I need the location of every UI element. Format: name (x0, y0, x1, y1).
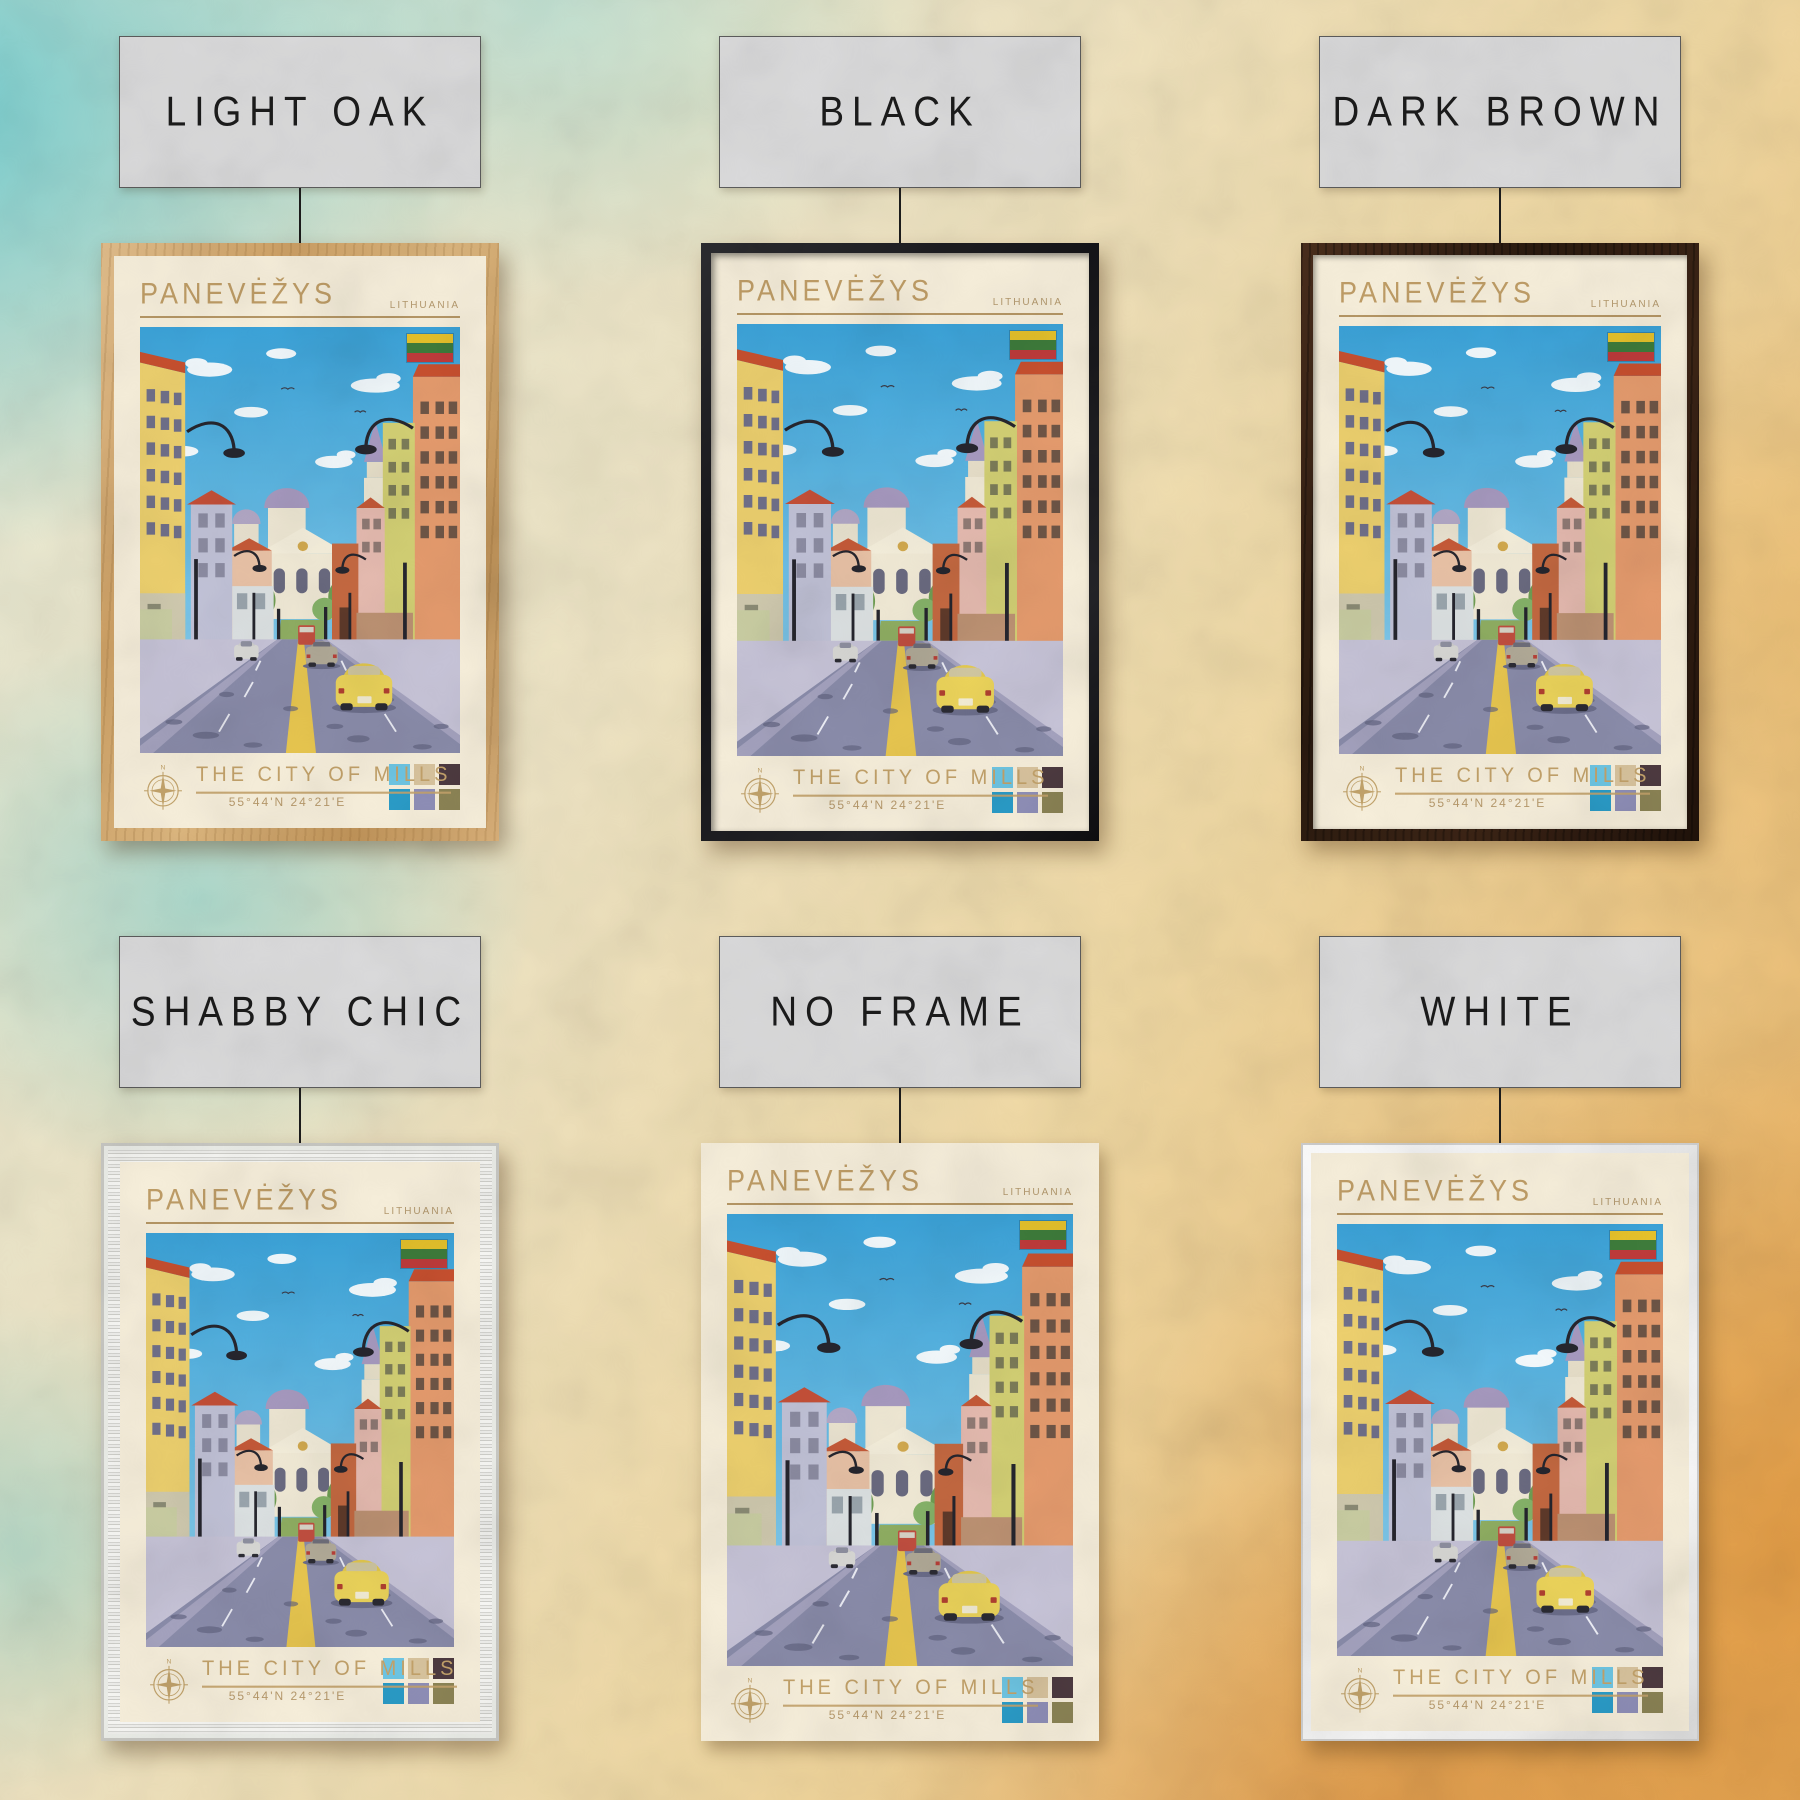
flag-stripe (401, 1240, 447, 1249)
coordinates: 55°44'N 24°21'E (229, 795, 347, 809)
footer-text: THE CITY OF MILLS 55°44'N 24°21'E (196, 764, 379, 811)
coordinates: 55°44'N 24°21'E (829, 798, 947, 812)
footer-text: THE CITY OF MILLS 55°44'N 24°21'E (202, 1658, 373, 1705)
poster-frame: PANEVĖŽYS LITHUANIA N (101, 1143, 499, 1741)
poster-footer: N THE CITY OF MILLS 55°44'N 24°21'E (1337, 1656, 1663, 1715)
poster-grid: LIGHT OAK PANEVĖŽYS LITHUANIA N (0, 0, 1800, 1800)
footer-text: THE CITY OF MILLS 55°44'N 24°21'E (1393, 1667, 1582, 1714)
palette-swatch (1052, 1702, 1073, 1723)
footer-text: THE CITY OF MILLS 55°44'N 24°21'E (1395, 765, 1580, 812)
variant-label: SHABBY CHIC (131, 988, 469, 1035)
street-scene-illustration (727, 1214, 1073, 1666)
hanging-line (899, 1088, 901, 1143)
poster-print: PANEVĖŽYS LITHUANIA N (701, 1143, 1099, 1741)
flag-stripe (1010, 340, 1056, 349)
city-nickname: THE CITY OF MILLS (1395, 764, 1650, 794)
artwork (727, 1214, 1073, 1666)
artwork (1339, 326, 1661, 754)
footer-text: THE CITY OF MILLS 55°44'N 24°21'E (783, 1677, 992, 1724)
variant-label-card: DARK BROWN (1319, 36, 1681, 188)
poster-footer: N THE CITY OF MILLS 55°44'N 24°21'E (140, 753, 460, 812)
poster-header: PANEVĖŽYS LITHUANIA (1339, 279, 1661, 317)
city-title: PANEVĖŽYS (1339, 277, 1535, 310)
hanging-line (299, 188, 301, 243)
variant-label: NO FRAME (770, 988, 1029, 1035)
country-label: LITHUANIA (1593, 1197, 1663, 1208)
flag-stripe (1608, 333, 1654, 342)
street-scene-illustration (1339, 326, 1661, 754)
artwork (737, 324, 1063, 756)
poster-variant-no-frame: NO FRAME PANEVĖŽYS LITHUANIA N (600, 900, 1200, 1800)
compass-rose-icon: N (727, 1675, 773, 1725)
flag-stripe (1610, 1231, 1656, 1240)
country-label: LITHUANIA (1591, 299, 1661, 310)
lithuania-flag-icon (407, 334, 453, 362)
svg-text:N: N (758, 768, 763, 775)
poster-variant-shabby-chic: SHABBY CHIC PANEVĖŽYS LITHUANIA N (0, 900, 600, 1800)
compass-rose-icon: N (140, 762, 186, 812)
city-nickname: THE CITY OF MILLS (1393, 1666, 1648, 1696)
poster-footer: N THE CITY OF MILLS 55°44'N 24°21'E (146, 1647, 454, 1706)
flag-stripe (1608, 342, 1654, 351)
poster-variant-dark-brown: DARK BROWN PANEVĖŽYS LITHUANIA N (1200, 0, 1800, 900)
poster-footer: N THE CITY OF MILLS 55°44'N 24°21'E (1339, 754, 1661, 813)
city-title: PANEVĖŽYS (146, 1184, 342, 1217)
country-label: LITHUANIA (1003, 1187, 1073, 1198)
poster-header: PANEVĖŽYS LITHUANIA (727, 1167, 1073, 1205)
poster-print: PANEVĖŽYS LITHUANIA N (1313, 255, 1687, 829)
city-title: PANEVĖŽYS (727, 1165, 923, 1198)
variant-label: BLACK (819, 88, 980, 135)
poster-header: PANEVĖŽYS LITHUANIA (140, 280, 460, 318)
flag-stripe (1020, 1221, 1066, 1230)
compass-rose-icon: N (1337, 1665, 1383, 1715)
footer-text: THE CITY OF MILLS 55°44'N 24°21'E (793, 767, 982, 814)
flag-stripe (1020, 1240, 1066, 1249)
poster-frame: PANEVĖŽYS LITHUANIA N (1301, 243, 1699, 841)
poster-footer: N THE CITY OF MILLS 55°44'N 24°21'E (737, 756, 1063, 815)
flag-stripe (407, 334, 453, 343)
poster-header: PANEVĖŽYS LITHUANIA (146, 1186, 454, 1224)
city-nickname: THE CITY OF MILLS (783, 1676, 1038, 1706)
country-label: LITHUANIA (384, 1206, 454, 1217)
artwork (146, 1233, 454, 1647)
flag-stripe (401, 1249, 447, 1258)
poster-print: PANEVĖŽYS LITHUANIA N (114, 256, 486, 828)
poster-variant-black: BLACK PANEVĖŽYS LITHUANIA N (600, 0, 1200, 900)
flag-stripe (1010, 331, 1056, 340)
flag-stripe (1020, 1230, 1066, 1239)
street-scene-illustration (1337, 1224, 1663, 1656)
flag-stripe (407, 353, 453, 362)
compass-rose-icon: N (737, 765, 783, 815)
coordinates: 55°44'N 24°21'E (229, 1689, 347, 1703)
variant-label-card: WHITE (1319, 936, 1681, 1088)
poster-frame: PANEVĖŽYS LITHUANIA N (1301, 1143, 1699, 1741)
lithuania-flag-icon (401, 1240, 447, 1268)
variant-label-card: SHABBY CHIC (119, 936, 481, 1088)
country-label: LITHUANIA (390, 300, 460, 311)
variant-label-card: LIGHT OAK (119, 36, 481, 188)
city-title: PANEVĖŽYS (140, 278, 336, 311)
variant-label-card: NO FRAME (719, 936, 1081, 1088)
artwork (140, 327, 460, 753)
svg-text:N: N (1360, 766, 1365, 773)
coordinates: 55°44'N 24°21'E (1429, 1698, 1547, 1712)
lithuania-flag-icon (1020, 1221, 1066, 1249)
variant-label: LIGHT OAK (166, 88, 435, 135)
flag-stripe (1610, 1250, 1656, 1259)
poster-print: PANEVĖŽYS LITHUANIA N (120, 1162, 480, 1722)
city-nickname: THE CITY OF MILLS (793, 766, 1048, 796)
city-title: PANEVĖŽYS (1337, 1175, 1533, 1208)
poster-variant-white: WHITE PANEVĖŽYS LITHUANIA N (1200, 900, 1800, 1800)
poster-header: PANEVĖŽYS LITHUANIA (1337, 1177, 1663, 1215)
flag-stripe (407, 343, 453, 352)
poster-print: PANEVĖŽYS LITHUANIA N (711, 253, 1089, 831)
svg-text:N: N (1358, 1668, 1363, 1675)
poster-variant-light-oak: LIGHT OAK PANEVĖŽYS LITHUANIA N (0, 0, 600, 900)
flag-stripe (1608, 352, 1654, 361)
palette-swatch (1052, 1677, 1073, 1698)
svg-text:N: N (167, 1659, 172, 1666)
variant-label: WHITE (1420, 988, 1579, 1035)
svg-text:N: N (161, 765, 166, 772)
coordinates: 55°44'N 24°21'E (1429, 796, 1547, 810)
poster-footer: N THE CITY OF MILLS 55°44'N 24°21'E (727, 1666, 1073, 1725)
city-nickname: THE CITY OF MILLS (202, 1657, 457, 1687)
street-scene-illustration (140, 327, 460, 753)
poster-frame: PANEVĖŽYS LITHUANIA N (701, 243, 1099, 841)
poster-frame: PANEVĖŽYS LITHUANIA N (701, 1143, 1099, 1741)
lithuania-flag-icon (1610, 1231, 1656, 1259)
svg-text:N: N (748, 1678, 753, 1685)
city-nickname: THE CITY OF MILLS (196, 763, 451, 793)
flag-stripe (1610, 1240, 1656, 1249)
city-title: PANEVĖŽYS (737, 275, 933, 308)
poster-header: PANEVĖŽYS LITHUANIA (737, 277, 1063, 315)
street-scene-illustration (737, 324, 1063, 756)
poster-print: PANEVĖŽYS LITHUANIA N (1311, 1153, 1689, 1731)
hanging-line (899, 188, 901, 243)
flag-stripe (401, 1259, 447, 1268)
lithuania-flag-icon (1608, 333, 1654, 361)
street-scene-illustration (146, 1233, 454, 1647)
country-label: LITHUANIA (993, 297, 1063, 308)
artwork (1337, 1224, 1663, 1656)
compass-rose-icon: N (146, 1656, 192, 1706)
lithuania-flag-icon (1010, 331, 1056, 359)
poster-frame: PANEVĖŽYS LITHUANIA N (101, 243, 499, 841)
hanging-line (299, 1088, 301, 1143)
hanging-line (1499, 188, 1501, 243)
compass-rose-icon: N (1339, 763, 1385, 813)
coordinates: 55°44'N 24°21'E (829, 1708, 947, 1722)
variant-label: DARK BROWN (1333, 88, 1668, 135)
hanging-line (1499, 1088, 1501, 1143)
variant-label-card: BLACK (719, 36, 1081, 188)
flag-stripe (1010, 350, 1056, 359)
